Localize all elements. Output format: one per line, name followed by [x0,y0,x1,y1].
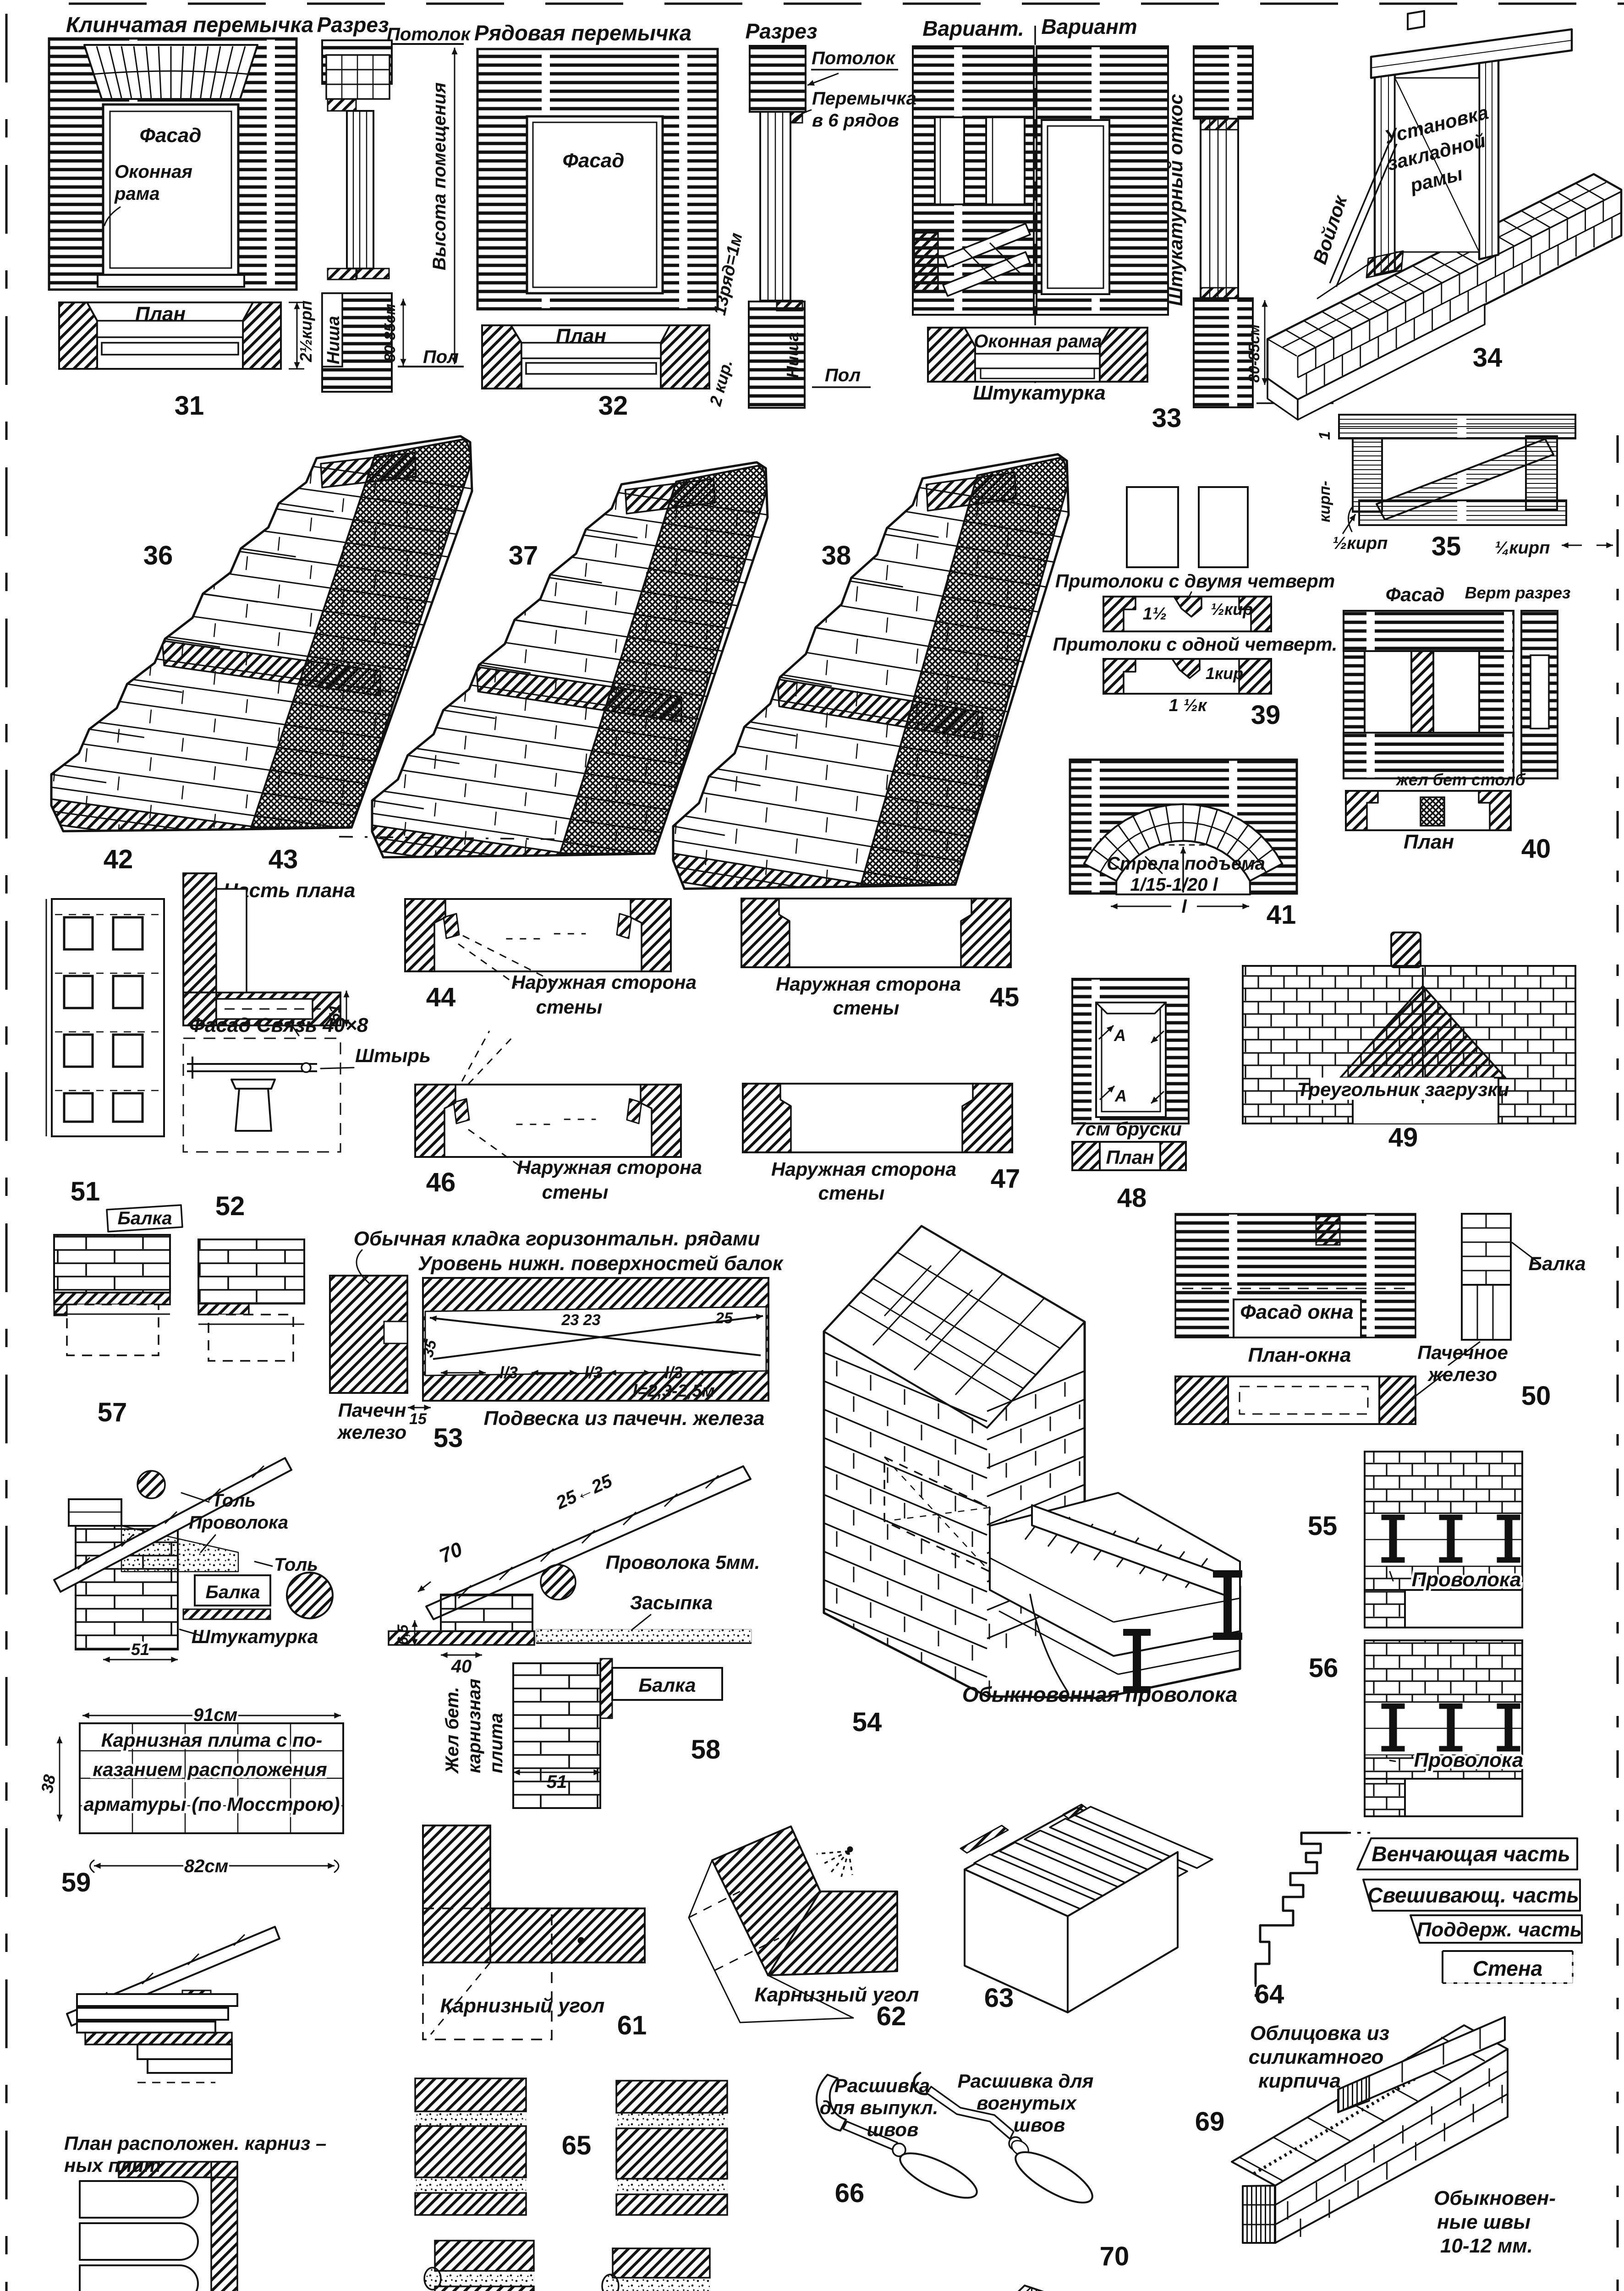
svg-text:Перемычка: Перемычка [812,88,916,109]
svg-text:51: 51 [131,1640,149,1659]
svg-text:7см бруски: 7см бруски [1075,1118,1182,1140]
svg-text:Толь: Толь [212,1491,256,1511]
svg-text:силикатного: силикатного [1249,2046,1384,2068]
svg-text:35: 35 [1432,532,1461,561]
svg-text:Притолоки с двумя четверт: Притолоки с двумя четверт [1055,570,1335,592]
svg-text:Балка: Балка [639,1674,696,1696]
svg-text:Штырь: Штырь [355,1045,431,1066]
svg-text:53: 53 [433,1423,463,1453]
svg-text:54: 54 [852,1707,882,1737]
svg-text:25: 25 [715,1310,733,1327]
svg-text:Вариант: Вариант [1041,15,1137,38]
svg-text:64: 64 [1255,1979,1284,2009]
svg-text:Обыкновен-: Обыкновен- [1434,2187,1556,2209]
svg-text:52: 52 [215,1191,245,1221]
svg-text:Разрез: Разрез [746,19,817,43]
svg-text:56: 56 [1309,1653,1339,1683]
svg-text:1½: 1½ [1143,604,1167,624]
svg-text:6,5: 6,5 [395,1624,411,1645]
svg-text:Оконная рама: Оконная рама [974,331,1102,351]
svg-text:Потолок: Потолок [812,48,895,68]
svg-text:Проволока: Проволока [1412,1568,1521,1591]
svg-text:Ниша: Ниша [324,316,343,364]
svg-text:1/15-1/20 l: 1/15-1/20 l [1130,875,1218,895]
svg-text:91см: 91см [193,1705,237,1725]
svg-text:План расположен. карниз –: План расположен. карниз – [64,2132,326,2154]
svg-text:¼кирп: ¼кирп [1495,538,1550,558]
svg-text:Фасад: Фасад [1386,584,1445,605]
svg-text:15: 15 [409,1410,427,1428]
svg-text:рама: рама [114,184,160,204]
svg-text:Треугольник загрузки: Треугольник загрузки [1297,1079,1509,1100]
svg-text:Венчающая часть: Венчающая часть [1372,1842,1570,1866]
svg-text:Штукатурка: Штукатурка [192,1626,318,1647]
svg-text:51: 51 [71,1177,100,1206]
svg-text:41: 41 [1267,900,1296,930]
svg-text:Высота помещения: Высота помещения [429,82,450,270]
svg-text:железо: железо [1427,1364,1497,1385]
svg-text:Пачечн: Пачечн [338,1399,406,1421]
svg-text:1кир: 1кир [1206,664,1243,683]
svg-text:51: 51 [547,1772,567,1792]
svg-text:А: А [1114,1026,1126,1045]
svg-text:железо: железо [337,1421,406,1443]
svg-text:½кир: ½кир [1211,600,1253,619]
svg-text:59: 59 [61,1868,91,1897]
svg-text:l=2,3-2,5м: l=2,3-2,5м [632,1381,714,1401]
svg-text:Балка: Балка [118,1208,172,1228]
svg-text:Наружная сторона: Наружная сторона [517,1156,702,1178]
svg-text:Пачечное: Пачечное [1417,1342,1508,1363]
svg-text:Карнизный угол: Карнизный угол [440,1995,605,2017]
svg-text:Фасад окна: Фасад окна [1240,1301,1353,1323]
svg-text:в 6 рядов: в 6 рядов [812,110,899,131]
svg-text:l/3: l/3 [499,1363,518,1382]
svg-text:Свешивающ. часть: Свешивающ. часть [1367,1883,1579,1907]
svg-text:Оконная: Оконная [115,162,192,182]
svg-text:Ниша: Ниша [783,332,802,378]
svg-text:23 23: 23 23 [561,1311,600,1329]
svg-text:плита: плита [486,1713,506,1773]
svg-text:l/3: l/3 [664,1363,683,1382]
svg-text:стены: стены [536,996,603,1018]
svg-text:47: 47 [991,1164,1020,1194]
svg-text:Расшивка для: Расшивка для [958,2070,1094,2092]
svg-text:2½кирп: 2½кирп [296,301,315,362]
svg-text:39: 39 [1251,700,1281,730]
svg-text:57: 57 [98,1398,127,1427]
svg-text:48: 48 [1117,1183,1147,1213]
svg-text:Штукатурка: Штукатурка [973,382,1106,404]
svg-text:10-12 мм.: 10-12 мм. [1440,2235,1533,2257]
svg-text:Притолоки с одной четверт.: Притолоки с одной четверт. [1053,634,1338,655]
svg-text:ные швы: ные швы [1437,2211,1531,2233]
svg-text:стены: стены [818,1182,885,1204]
svg-text:казанием расположения: казанием расположения [93,1759,327,1780]
svg-text:31: 31 [175,391,204,421]
svg-text:37: 37 [509,541,538,570]
svg-text:Засыпка: Засыпка [630,1592,713,1613]
svg-text:40: 40 [451,1656,472,1677]
svg-text:Штукатурный откос: Штукатурный откос [1165,94,1186,306]
svg-text:Обыкновенная проволока: Обыкновенная проволока [962,1683,1238,1706]
svg-text:l/3: l/3 [584,1363,603,1382]
svg-text:Фасад: Фасад [563,149,625,172]
svg-text:Пол: Пол [825,365,861,385]
svg-text:кирп-: кирп- [1316,481,1333,522]
svg-text:49: 49 [1388,1123,1418,1152]
svg-text:Фасад: Фасад [140,124,202,147]
svg-text:82см: 82см [184,1856,228,1876]
svg-text:45: 45 [990,982,1020,1012]
svg-text:58: 58 [691,1735,721,1765]
svg-text:65: 65 [562,2131,592,2160]
svg-text:Пол: Пол [423,347,459,367]
svg-text:швов: швов [867,2119,919,2140]
svg-text:Жел бет.: Жел бет. [442,1687,462,1774]
svg-text:Проволока: Проволока [1414,1749,1524,1771]
svg-text:63: 63 [984,1983,1014,2013]
svg-text:Стрела подъема: Стрела подъема [1107,854,1265,874]
svg-text:швов: швов [1014,2114,1065,2136]
svg-text:кирпича: кирпича [1258,2070,1341,2092]
svg-text:Наружная сторона: Наружная сторона [511,971,697,993]
svg-text:61: 61 [617,2011,647,2040]
svg-text:l: l [1181,897,1187,917]
svg-text:55: 55 [1308,1511,1338,1541]
svg-text:43: 43 [269,844,298,874]
svg-text:План: План [1404,831,1454,853]
svg-text:62: 62 [877,2001,906,2031]
svg-text:Балка: Балка [206,1582,260,1602]
svg-text:для выпукл.: для выпукл. [820,2097,938,2118]
svg-text:34: 34 [1473,343,1503,373]
svg-text:46: 46 [426,1167,456,1197]
svg-text:69: 69 [1195,2107,1225,2137]
svg-text:Проволока: Проволока [189,1513,288,1533]
svg-text:План-окна: План-окна [1248,1344,1351,1366]
svg-text:33: 33 [1152,403,1182,433]
svg-text:Верт разрез: Верт разрез [1465,583,1571,602]
svg-text:План: План [1106,1146,1154,1168]
svg-text:70: 70 [1100,2242,1130,2271]
svg-text:вогнутых: вогнутых [977,2092,1077,2114]
svg-text:Проволока 5мм.: Проволока 5мм. [606,1551,760,1573]
svg-text:Потолок: Потолок [387,24,471,44]
svg-text:Обычная кладка горизонтальн. р: Обычная кладка горизонтальн. рядами [354,1228,760,1250]
svg-text:1: 1 [1316,431,1333,440]
svg-text:50: 50 [1521,1381,1551,1411]
svg-text:Стена: Стена [1473,1957,1542,1980]
svg-text:80-85см: 80-85см [1245,324,1262,383]
svg-text:жел бет столб: жел бет столб [1395,770,1526,789]
svg-text:Подвеска из пачечн. железа: Подвеска из пачечн. железа [484,1407,765,1430]
svg-text:36: 36 [143,541,173,570]
svg-text:38: 38 [38,1773,59,1795]
svg-text:Рядовая перемычка: Рядовая перемычка [474,21,691,45]
svg-text:арматуры (по Мосстрою): арматуры (по Мосстрою) [83,1793,340,1815]
svg-text:Наружная сторона: Наружная сторона [776,973,961,995]
svg-text:Облицовка из: Облицовка из [1250,2022,1389,2044]
svg-text:44: 44 [426,982,456,1012]
svg-text:1 ½к: 1 ½к [1169,696,1207,715]
svg-text:План: План [556,325,606,347]
svg-text:Балка: Балка [1529,1253,1586,1274]
svg-text:32: 32 [598,391,628,421]
svg-text:Вариант.: Вариант. [922,16,1024,40]
svg-text:38: 38 [822,541,851,570]
svg-text:Наружная сторона: Наружная сторона [771,1158,956,1180]
svg-text:80-85см: 80-85см [381,304,398,362]
svg-text:Фасад Связь 40×8: Фасад Связь 40×8 [189,1014,368,1036]
svg-text:карнизная: карнизная [464,1679,484,1773]
svg-text:40: 40 [1521,834,1551,864]
svg-text:Уровень нижн. поверхностей бал: Уровень нижн. поверхностей балок [418,1252,784,1275]
svg-text:42: 42 [104,844,133,874]
svg-text:Клинчатая перемычка: Клинчатая перемычка [66,12,313,37]
svg-text:А: А [1114,1086,1127,1105]
svg-text:½кирп: ½кирп [1333,534,1388,553]
svg-text:Расшивка: Расшивка [834,2075,930,2096]
svg-text:Поддерж. часть: Поддерж. часть [1417,1918,1582,1941]
svg-text:План: План [135,303,186,325]
svg-text:66: 66 [835,2178,865,2208]
svg-text:стены: стены [833,997,900,1019]
svg-text:стены: стены [542,1181,609,1203]
svg-text:Карнизная плита с по-: Карнизная плита с по- [101,1729,323,1751]
svg-text:Разрез: Разрез [317,13,389,37]
